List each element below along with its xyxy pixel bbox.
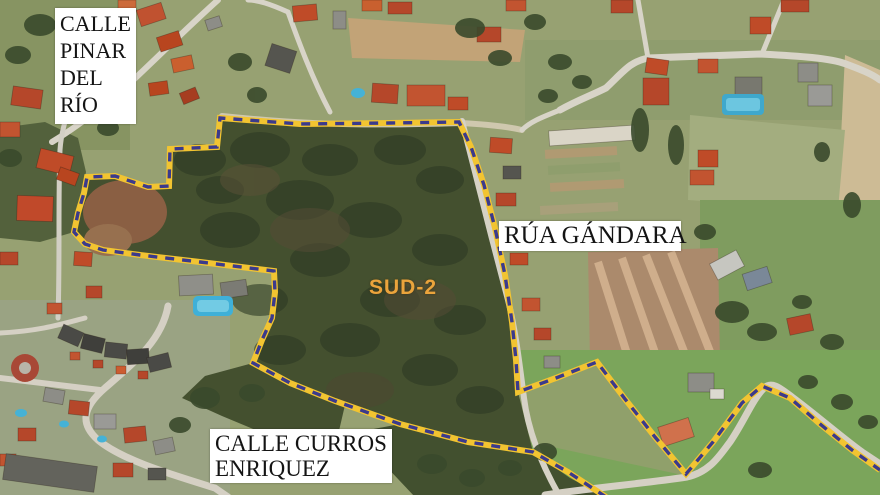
aerial-map: CALLE PINAR DEL RÍO RÚA GÁNDARA CALLE CU… xyxy=(0,0,880,495)
label-line: ENRIQUEZ xyxy=(215,456,392,481)
zone-label-sud-2: SUD-2 xyxy=(358,276,448,300)
label-line: PINAR xyxy=(60,37,136,64)
street-label-rua-gandara: RÚA GÁNDARA xyxy=(499,221,681,251)
label-line: CALLE CURROS xyxy=(215,431,392,456)
street-label-calle-pinar-del-rio: CALLE PINAR DEL RÍO xyxy=(55,8,136,124)
street-label-calle-curros-enriquez: CALLE CURROS ENRIQUEZ xyxy=(210,429,392,483)
label-line: DEL xyxy=(60,64,136,91)
label-line: RÚA GÁNDARA xyxy=(504,221,681,250)
roundabout-plaza xyxy=(11,354,39,382)
label-line: RÍO xyxy=(60,91,136,118)
label-line: CALLE xyxy=(60,10,136,37)
